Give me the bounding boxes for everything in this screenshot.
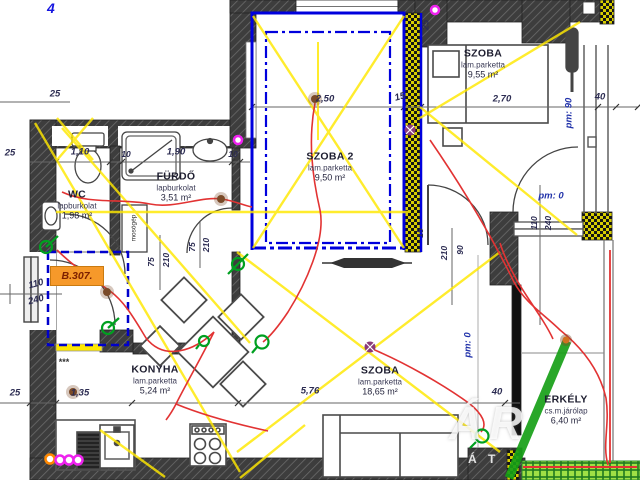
dim-top-25: 25 (50, 89, 61, 100)
dim-balc-door-h: 240 (543, 216, 553, 230)
dim-bath-door-w: 75 (187, 242, 197, 251)
dim-wc-door-w: 75 (146, 257, 156, 266)
room-floor: lam.parketta (131, 376, 178, 386)
room-area: 18,65 m² (358, 387, 402, 398)
watermark-large: ÁR (449, 396, 529, 450)
nightstand-icon (443, 128, 462, 146)
stove-icon (190, 424, 226, 466)
dim-left-25: 25 (5, 148, 16, 159)
dim-pm0-door: pm: 0 (538, 191, 563, 202)
room-label-szoba-top: SZOBA lam.parketta 9,55 m² (461, 48, 505, 81)
dim-25v: 25 (421, 20, 432, 31)
room-name: ERKÉLY (544, 394, 587, 407)
stars-note: *** (59, 357, 70, 367)
dim-pm90: pm: 90 (564, 98, 575, 129)
room-area: 9,55 m² (461, 70, 505, 81)
room-name: SZOBA (358, 365, 402, 378)
room-label-wc: WC lapburkolat 1,98 m² (57, 189, 96, 222)
dim-b25: 25 (10, 388, 21, 399)
dim-576: 5,76 (301, 386, 320, 397)
room-area: 9,50 m² (306, 173, 353, 184)
watermark-small: Á T (468, 452, 499, 466)
sofa-icon (323, 415, 458, 477)
balcony-floor-hatch (522, 461, 640, 480)
room-label-erkely: ERKÉLY cs.m.járólap 6,40 m² (544, 394, 587, 427)
room-floor: lam.parketta (306, 163, 353, 173)
unit-number-badge: B.307. (50, 266, 104, 286)
room-area: 5,24 m² (131, 386, 178, 397)
bath-sink-icon (193, 139, 227, 162)
dim-10a: 10 (121, 149, 130, 159)
balcony-door-arc (513, 147, 578, 212)
room-floor: lapburkolat (57, 201, 96, 211)
room-label-furdo: FÜRDŐ lapburkolat 3,51 m² (156, 171, 195, 204)
sheet-number: 4 (47, 0, 55, 16)
dim-hall-door-h: 210 (439, 246, 449, 260)
dim-190: 1,90 (167, 147, 186, 158)
room-floor: cs.m.járólap (544, 406, 587, 416)
dim-pm0-room: pm: 0 (463, 332, 474, 357)
dim-balc-door-w: 110 (529, 216, 539, 230)
room-area: 1,98 m² (57, 211, 96, 222)
room-floor: lapburkolat (156, 183, 195, 193)
dim-250: 2,50 (316, 94, 335, 105)
room-label-szoba2: SZOBA 2 lam.parketta 9,50 m² (306, 151, 353, 184)
beam-symbol (322, 258, 412, 268)
dim-bath-door-h: 210 (201, 238, 211, 252)
room-name: WC (57, 189, 96, 202)
radiator-icon (566, 28, 578, 92)
room-name: KONYHA (131, 364, 178, 377)
room-area: 3,51 m² (156, 193, 195, 204)
dim-10b: 10 (228, 149, 237, 159)
hall-door-arc (428, 185, 488, 245)
dim-270: 2,70 (493, 94, 512, 105)
washing-machine-label: mosógép (131, 215, 138, 242)
room-label-szoba-nagy: SZOBA lam.parketta 18,65 m² (358, 365, 402, 398)
room-name: FÜRDŐ (156, 171, 195, 184)
dim-wc-door-h: 210 (161, 253, 171, 267)
dim-110: 1,10 (71, 147, 90, 158)
kitchen-sink-icon (100, 425, 134, 468)
dim-15b: 15 (415, 228, 425, 237)
room-floor: lam.parketta (358, 377, 402, 387)
room-name: SZOBA 2 (306, 151, 353, 164)
room-name: SZOBA (461, 48, 505, 61)
floor-plan: 4 WC lapburkolat 1,98 m² FÜRDŐ lapburkol… (0, 0, 640, 480)
dim-hall-door-w: 90 (455, 245, 465, 254)
room-floor: lam.parketta (461, 60, 505, 70)
room-label-konyha: KONYHA lam.parketta 5,24 m² (131, 364, 178, 397)
dim-135: 1,35 (71, 388, 90, 399)
room-area: 6,40 m² (544, 416, 587, 427)
dim-40a: 40 (595, 92, 606, 103)
